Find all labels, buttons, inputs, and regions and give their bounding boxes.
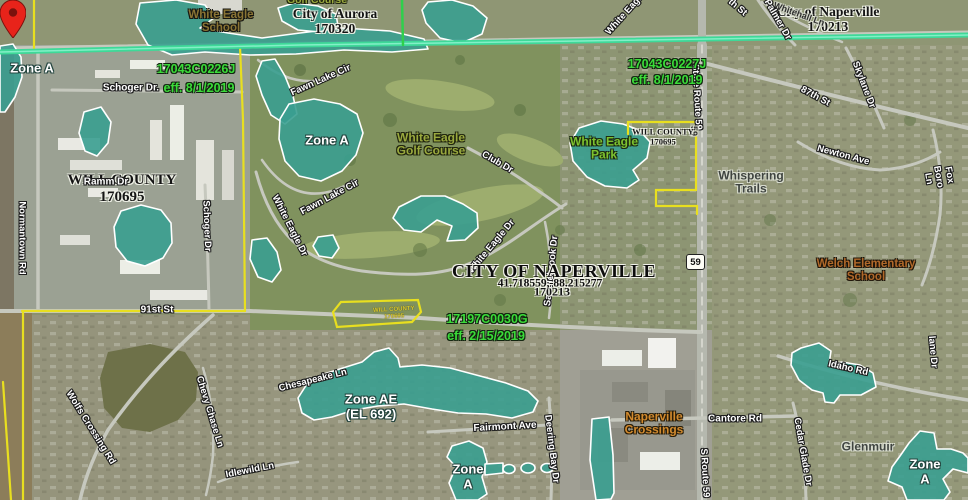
label-newton-ave: Newton Ave [816, 144, 871, 168]
label-palmer-dr: Palmer Dr [761, 0, 793, 42]
label-eff-17043C0227J: eff. 8/1/2019 [632, 73, 703, 87]
label-city-of-aurora: City of Aurora 170320 [293, 6, 378, 36]
map-canvas[interactable]: Zone AWhite Eagle SchoolGolf CourseCity … [0, 0, 968, 500]
label-cantore-rd: Cantore Rd [708, 413, 762, 424]
label-lane-dr-partial: lane Dr [925, 335, 938, 368]
label-normantown-rd: Normantown Rd [16, 201, 27, 274]
label-schoger-dr-top: Schoger Dr. [103, 82, 159, 93]
label-city-of-naperville-geocode: CITY OF NAPERVILLE [452, 261, 656, 281]
label-fawn-lake-cir-s: Fawn Lake Cir [299, 178, 361, 218]
label-ramm-dr: Ramm Dr [84, 176, 128, 187]
label-route-59-pavement: 59 [689, 126, 699, 136]
label-chevy-chase-ln: Chevy Chase Ln [193, 375, 225, 449]
label-panel-17043C0226J: 17043C0226J [157, 62, 236, 76]
map-labels-layer: Zone AWhite Eagle SchoolGolf CourseCity … [0, 0, 968, 500]
label-eff-17043C0226J: eff. 8/1/2019 [164, 81, 235, 95]
label-will-county-park-box: WILL COUNTY 170695 [632, 127, 694, 146]
label-will-county-small-box: WILL COUNTY 170695 [373, 306, 415, 323]
label-th-st-partial: th St [725, 0, 748, 19]
label-87th-st: 87th St [799, 85, 832, 109]
label-eff-17197C0030G: eff. 2/15/2019 [447, 329, 525, 343]
label-zone-a-lake: Zone A [305, 134, 349, 149]
label-saddlebrook-dr: Saddlebrook Dr [543, 235, 561, 306]
label-golf-course-partial: Golf Course [287, 0, 347, 7]
label-state-route-59: State Route 59 [689, 64, 703, 130]
label-welch-elementary: Welch Elementary School [817, 258, 916, 284]
label-idaho-rd: Idaho Rd [827, 359, 869, 378]
label-zone-a-br: Zone A [904, 457, 947, 486]
label-deering-bay-dr: Deering Bay Dr [542, 414, 561, 483]
label-naperville-crossings: Naperville Crossings [625, 411, 684, 438]
label-wolfs-crossing-rd: Wolfs Crossing Rd [63, 389, 117, 467]
label-zone-a-bottom: Zone A [452, 462, 483, 491]
label-fawn-lake-cir-n: Fawn Lake Cir [289, 63, 352, 99]
label-schoger-dr-vert: Schoger Dr [200, 200, 212, 252]
label-skylane-dr: Skylane Dr [849, 60, 877, 110]
label-chesapeake-ln: Chesapeake Ln [278, 367, 348, 394]
label-panel-17197C0030G: 17197C0030G [446, 312, 527, 326]
label-170213-under: 170213 [534, 285, 570, 298]
label-white-eagle-park: White Eagle Park [570, 136, 638, 163]
label-cedar-glade-dr: Cedar Glade Dr [791, 417, 813, 487]
label-zone-ae: Zone AE (EL 692) [345, 392, 397, 421]
label-white-eagle-top-partial: White Eagle [604, 0, 648, 38]
label-will-county-main: WILL COUNTY 170695 [68, 172, 177, 206]
label-whispering-trails: Whispering Trails [718, 170, 783, 197]
label-s-route-59: S Route 59 [697, 448, 710, 498]
label-white-eagle-golf-course: White Eagle Golf Course [397, 132, 466, 159]
label-club-dr: Club Dr [479, 150, 514, 176]
label-whitehall-ln: Whitehall Ln [772, 0, 826, 28]
label-fairmont-ave: Fairmont Ave [473, 420, 537, 434]
label-fox-boro-ln: Fox Boro Ln [920, 159, 957, 194]
label-zone-a-left: Zone A [10, 62, 54, 77]
label-glenmuir: Glenmuir [842, 440, 895, 453]
label-91st-st: 91st St [141, 304, 174, 315]
label-panel-17043C0227J: 17043C0227J [628, 57, 707, 71]
label-city-of-naperville-top: City of Naperville 170213 [777, 4, 880, 34]
label-white-eagle-school: White Eagle School [188, 9, 253, 35]
label-white-eagle-dr-w: White Eagle Dr [269, 194, 309, 259]
label-idlewild-ln: Idlewild Ln [225, 461, 275, 481]
label-geocode-coordinates: 41.718559,-88.215277 [498, 278, 602, 291]
label-white-eagle-dr-c: White Eagle Dr [466, 218, 517, 276]
